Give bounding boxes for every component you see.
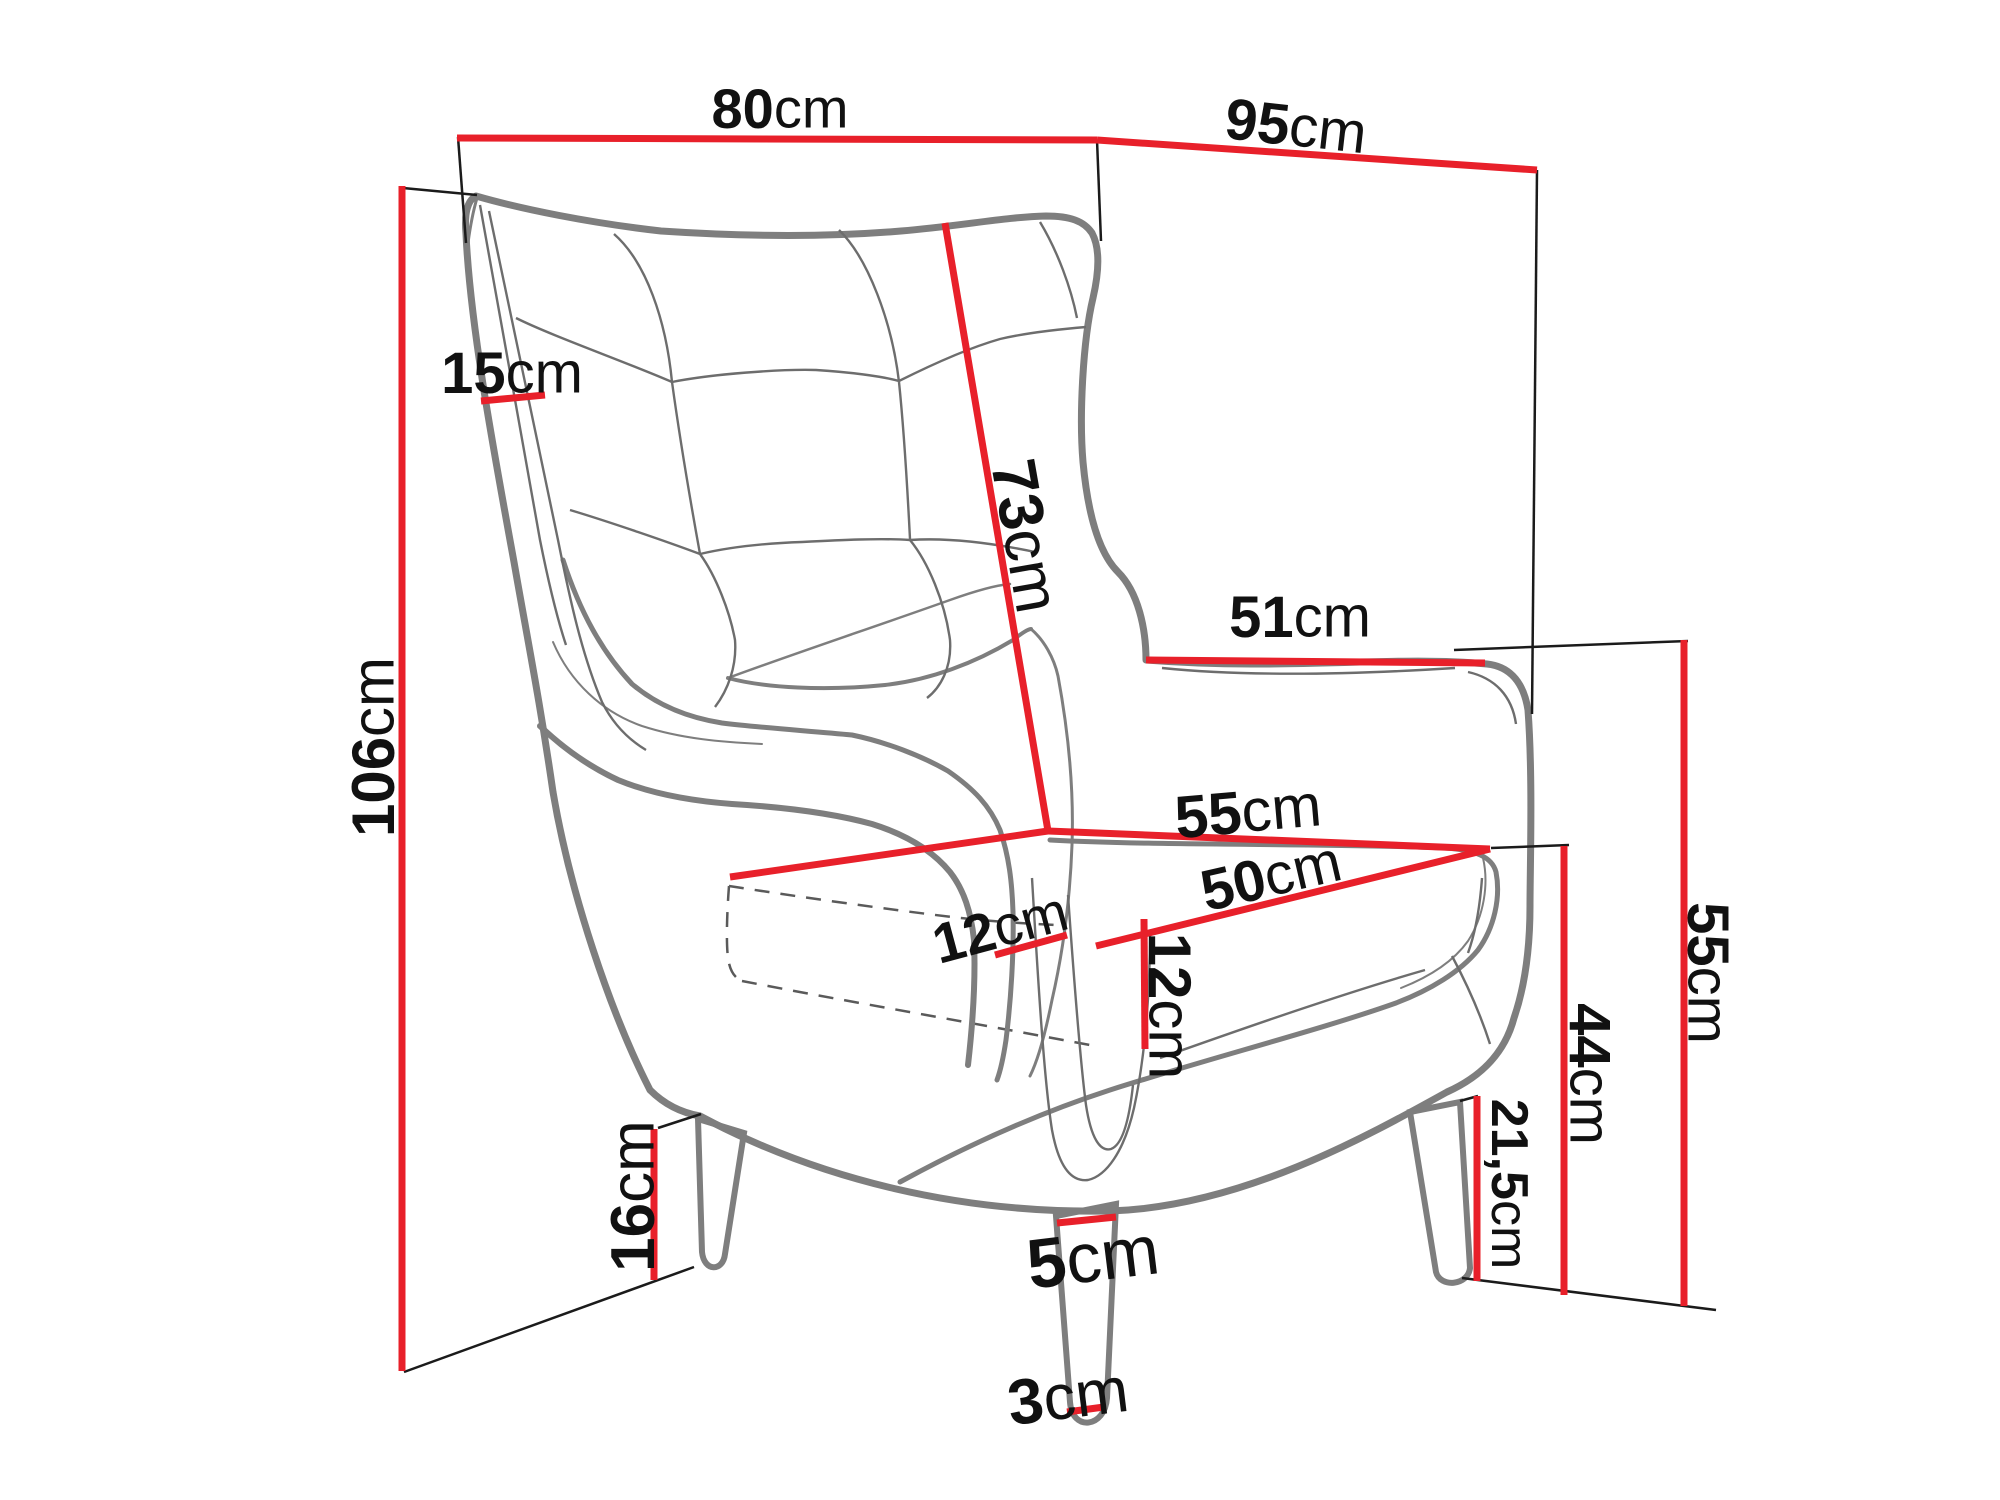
svg-text:12cm: 12cm [926,879,1075,975]
svg-text:3cm: 3cm [1004,1353,1133,1439]
svg-text:80cm: 80cm [712,77,849,140]
svg-text:95cm: 95cm [1222,86,1370,167]
svg-text:51cm: 51cm [1229,585,1371,650]
svg-text:55cm: 55cm [1676,902,1741,1044]
svg-text:16cm: 16cm [599,1120,668,1272]
svg-text:12cm: 12cm [1137,933,1204,1080]
svg-text:5cm: 5cm [1023,1210,1164,1304]
svg-text:15cm: 15cm [441,341,583,406]
svg-text:106cm: 106cm [340,657,407,837]
svg-text:21,5cm: 21,5cm [1480,1099,1538,1270]
svg-text:44cm: 44cm [1558,1003,1623,1145]
svg-text:73cm: 73cm [977,454,1073,618]
